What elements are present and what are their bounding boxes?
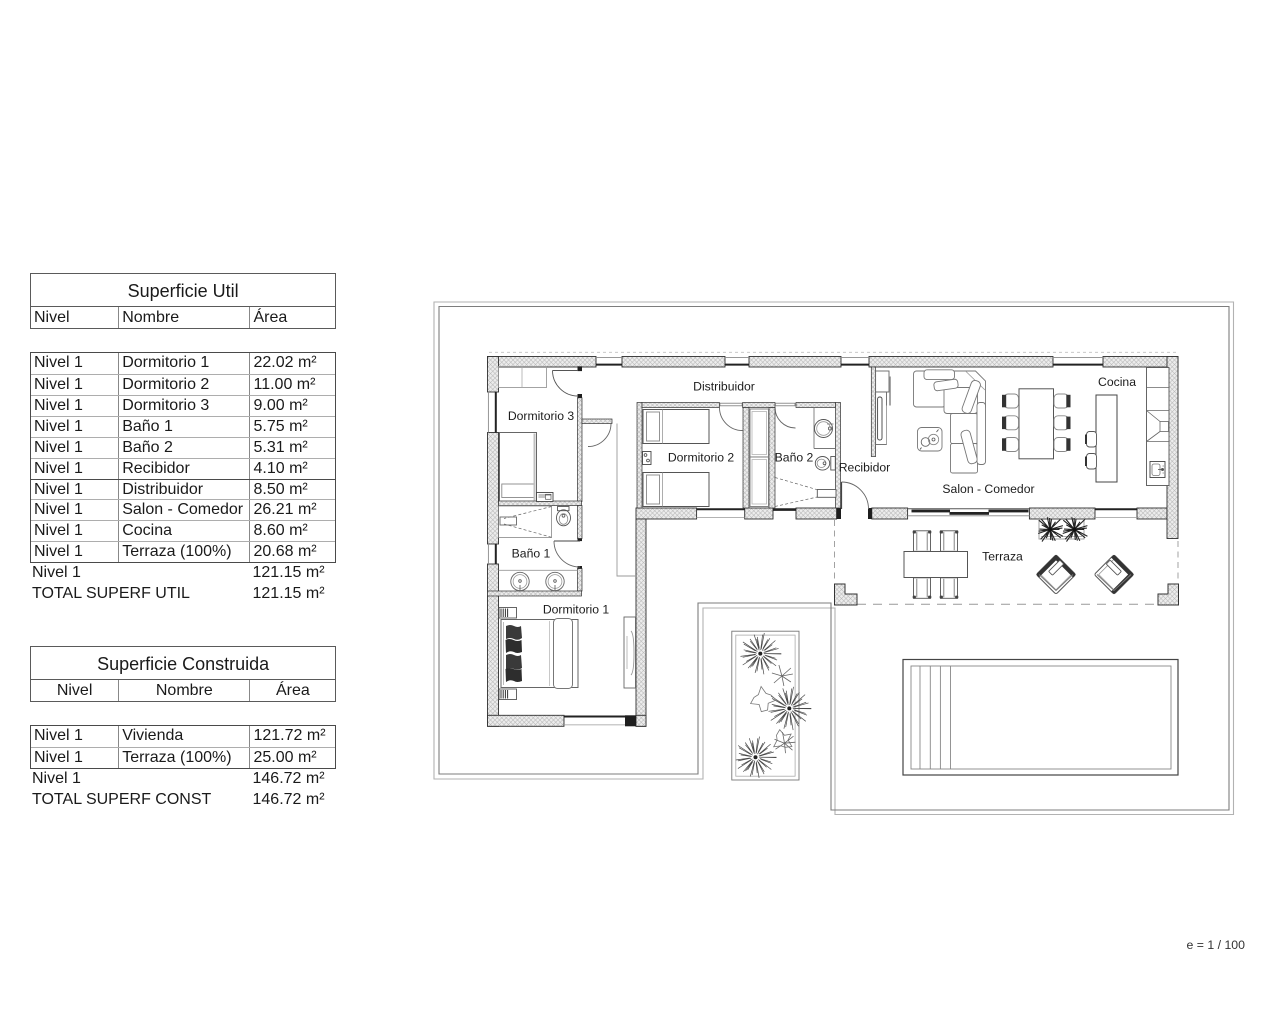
svg-text:Salon - Comedor: Salon - Comedor xyxy=(942,482,1034,496)
svg-text:Distribuidor: Distribuidor xyxy=(693,380,755,394)
svg-text:Terraza: Terraza xyxy=(982,550,1023,564)
svg-text:Baño 2: Baño 2 xyxy=(775,451,814,465)
svg-text:Cocina: Cocina xyxy=(1098,375,1136,389)
svg-text:Dormitorio 2: Dormitorio 2 xyxy=(668,451,735,465)
svg-text:Recibidor: Recibidor xyxy=(839,461,890,475)
svg-text:Dormitorio 1: Dormitorio 1 xyxy=(543,603,610,617)
svg-text:e = 1 / 100: e = 1 / 100 xyxy=(1187,938,1246,952)
svg-text:Baño 1: Baño 1 xyxy=(512,547,551,561)
svg-text:Dormitorio 3: Dormitorio 3 xyxy=(508,409,575,423)
